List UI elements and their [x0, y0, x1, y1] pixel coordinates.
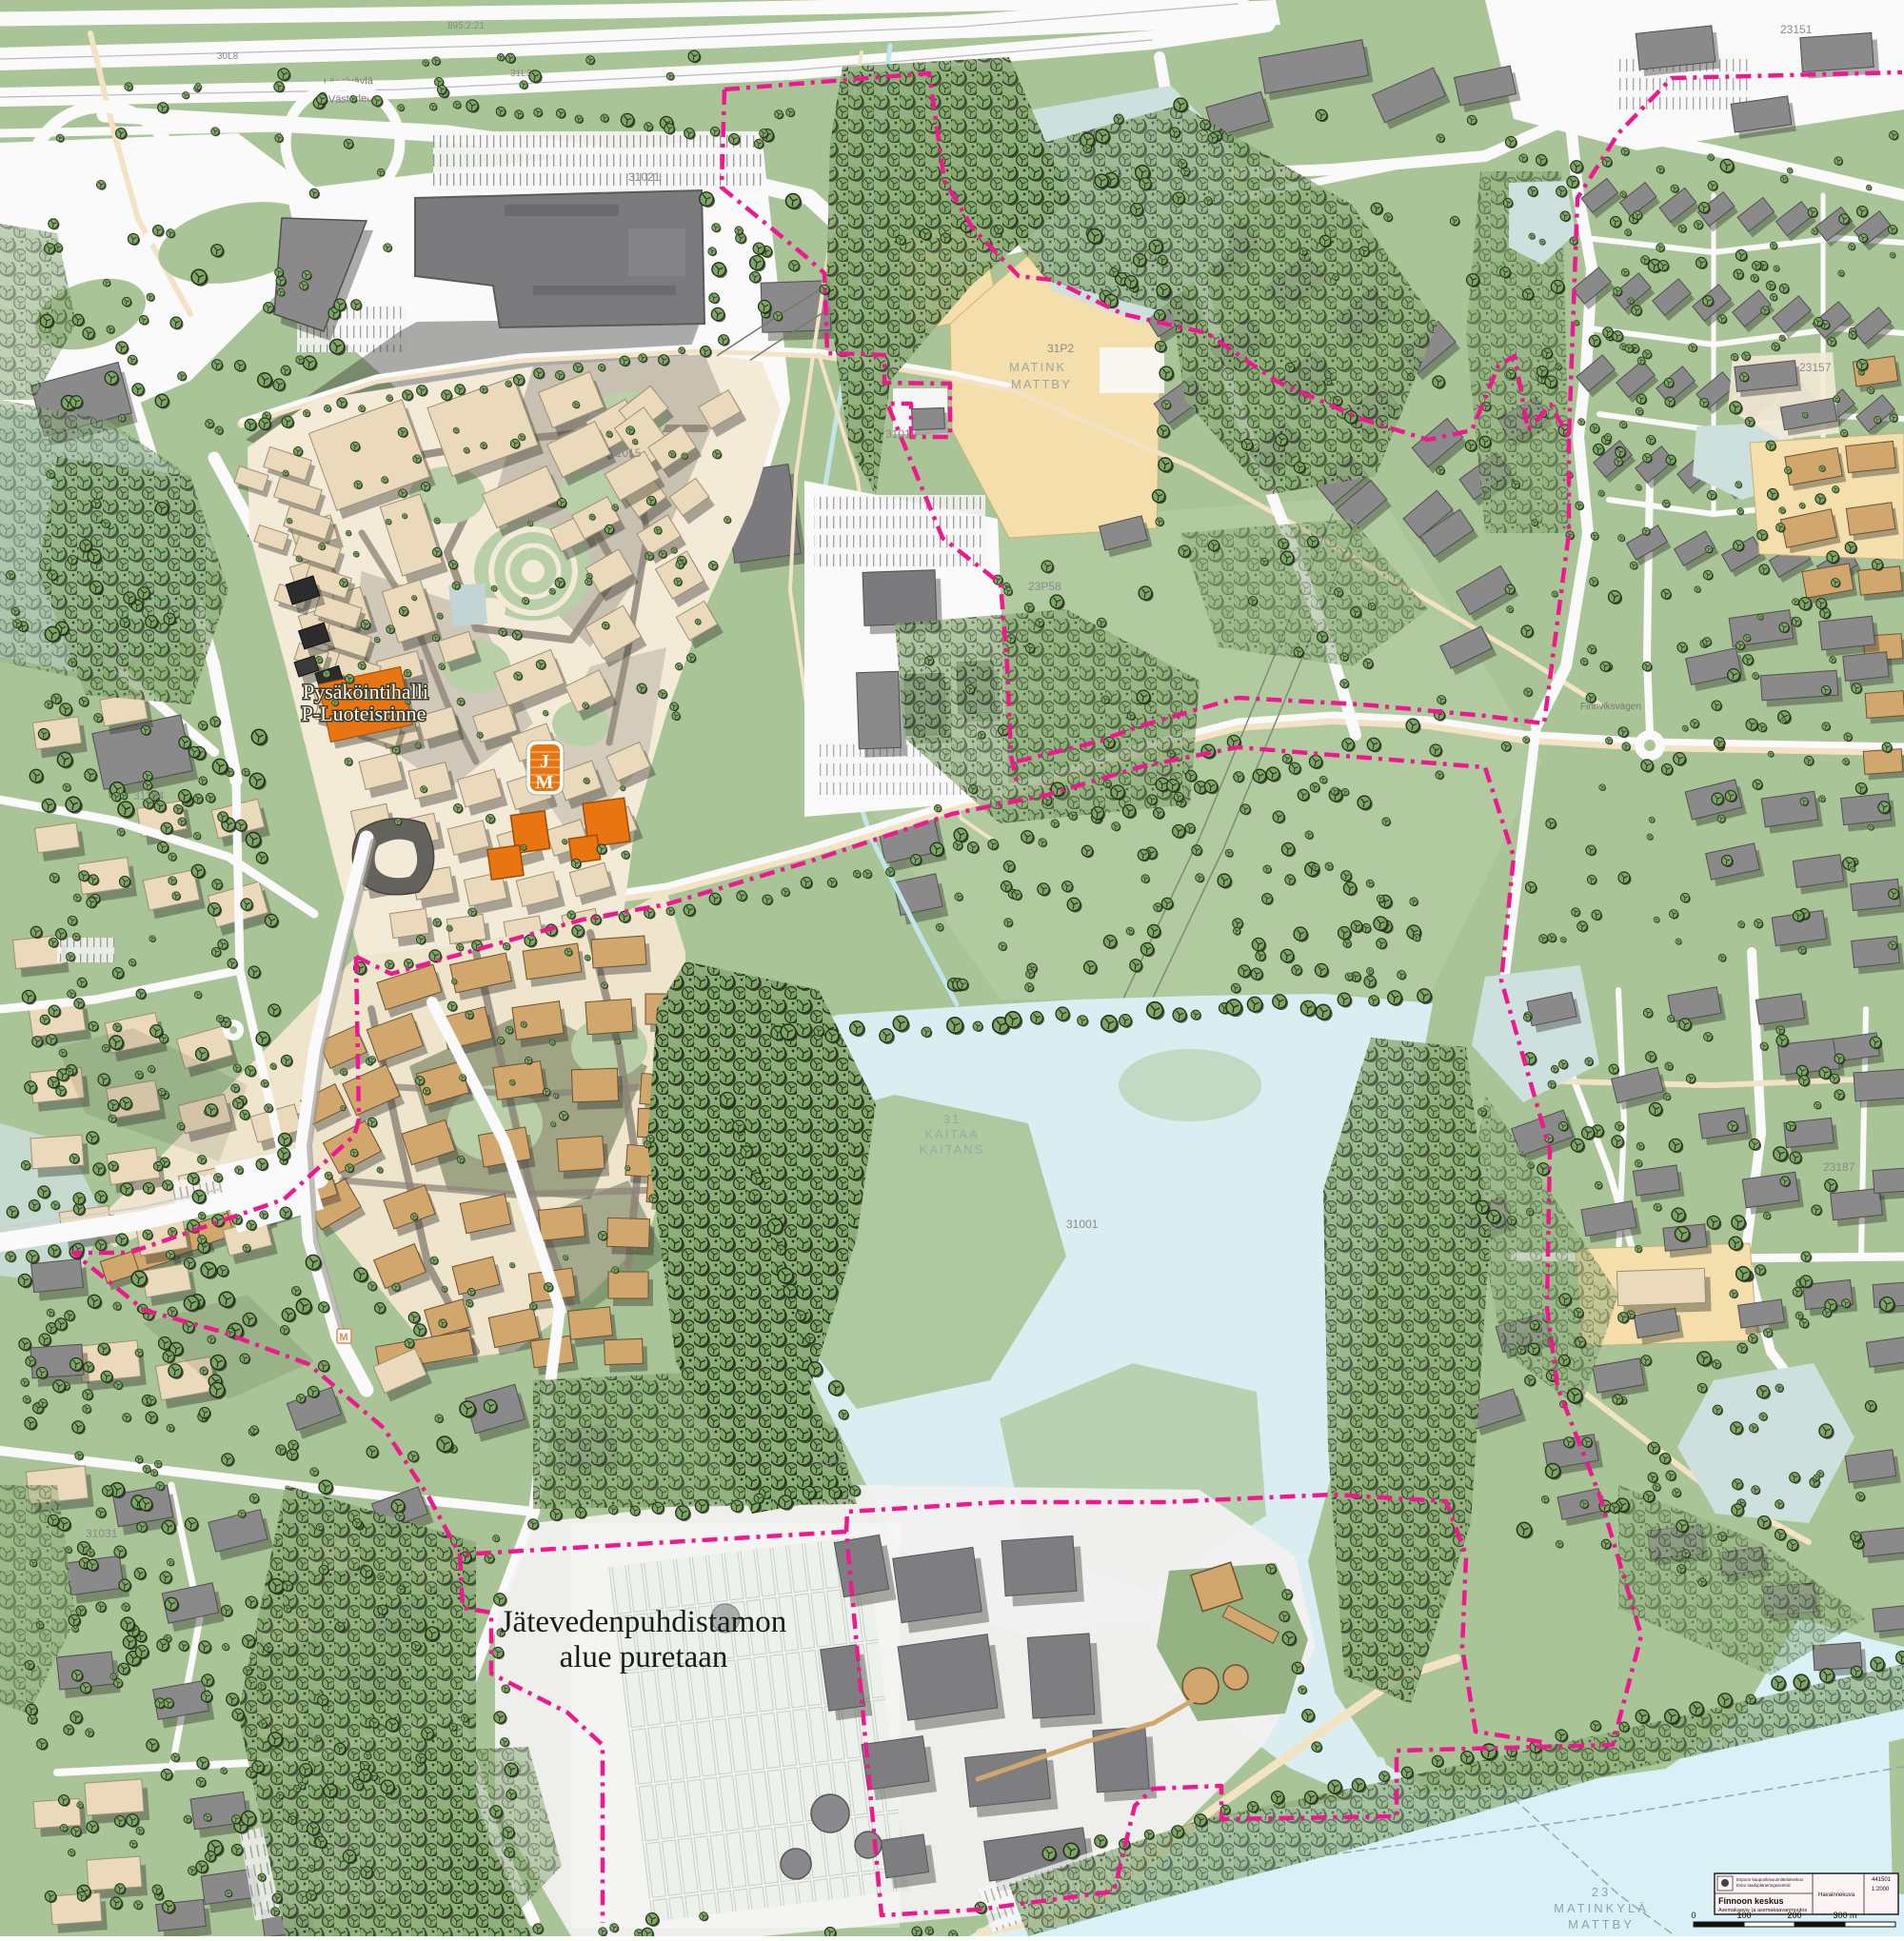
svg-text:J: J — [540, 751, 549, 772]
svg-text:Pysäköintihalli: Pysäköintihalli — [303, 680, 428, 703]
svg-text:23151: 23151 — [1780, 23, 1813, 36]
svg-text:31154: 31154 — [133, 789, 165, 802]
svg-text:Havainnekuva: Havainnekuva — [1818, 1892, 1855, 1898]
svg-text:Finnviksvägen: Finnviksvägen — [1580, 702, 1641, 712]
svg-text:23157: 23157 — [1799, 361, 1832, 374]
svg-text:31001: 31001 — [1066, 1218, 1099, 1231]
svg-text:895:2:21: 895:2:21 — [447, 21, 485, 31]
svg-text:31P1: 31P1 — [817, 1456, 843, 1469]
svg-text:Finnoon keskus: Finnoon keskus — [1718, 1896, 1784, 1906]
svg-text:MATTBY: MATTBY — [1568, 1917, 1635, 1931]
svg-text:300 m: 300 m — [1833, 1911, 1856, 1920]
svg-text:31021: 31021 — [628, 170, 661, 184]
svg-text:MATTBY: MATTBY — [1011, 377, 1072, 391]
svg-text:23P58: 23P58 — [1028, 580, 1061, 593]
svg-text:23: 23 — [1592, 1885, 1611, 1899]
svg-text:30L8: 30L8 — [217, 51, 239, 62]
svg-text:MATINKYLÄ: MATINKYLÄ — [1554, 1901, 1649, 1915]
svg-text:Espoon kaupunkisuunnittelukesk: Espoon kaupunkisuunnittelukeskus — [1736, 1877, 1804, 1882]
svg-text:200: 200 — [1787, 1911, 1801, 1920]
svg-text:M: M — [339, 1332, 347, 1343]
svg-text:441501: 441501 — [1872, 1877, 1892, 1883]
svg-text:31031: 31031 — [86, 1527, 118, 1540]
svg-text:MATINK: MATINK — [1009, 360, 1066, 374]
svg-text:31: 31 — [943, 1112, 961, 1126]
svg-text:1:2000: 1:2000 — [1872, 1887, 1890, 1892]
svg-text:M: M — [536, 772, 554, 793]
svg-text:0: 0 — [1691, 1911, 1696, 1920]
svg-text:31L3: 31L3 — [510, 69, 532, 79]
svg-text:23187: 23187 — [1823, 1160, 1855, 1174]
svg-text:Jätevedenpuhdistamon: Jätevedenpuhdistamon — [501, 1605, 787, 1639]
svg-text:31015: 31015 — [609, 446, 642, 460]
svg-text:100: 100 — [1736, 1911, 1751, 1920]
svg-text:Esbo stadsplaneringscentral: Esbo stadsplaneringscentral — [1736, 1883, 1791, 1888]
svg-text:alue puretaan: alue puretaan — [560, 1640, 728, 1674]
svg-text:31016: 31016 — [885, 427, 918, 441]
svg-text:31P2: 31P2 — [1047, 342, 1074, 355]
svg-text:KAITAA: KAITAA — [924, 1127, 979, 1141]
svg-text:P-Luoteisrinne: P-Luoteisrinne — [302, 702, 426, 725]
svg-text:KAITANS: KAITANS — [920, 1142, 985, 1157]
